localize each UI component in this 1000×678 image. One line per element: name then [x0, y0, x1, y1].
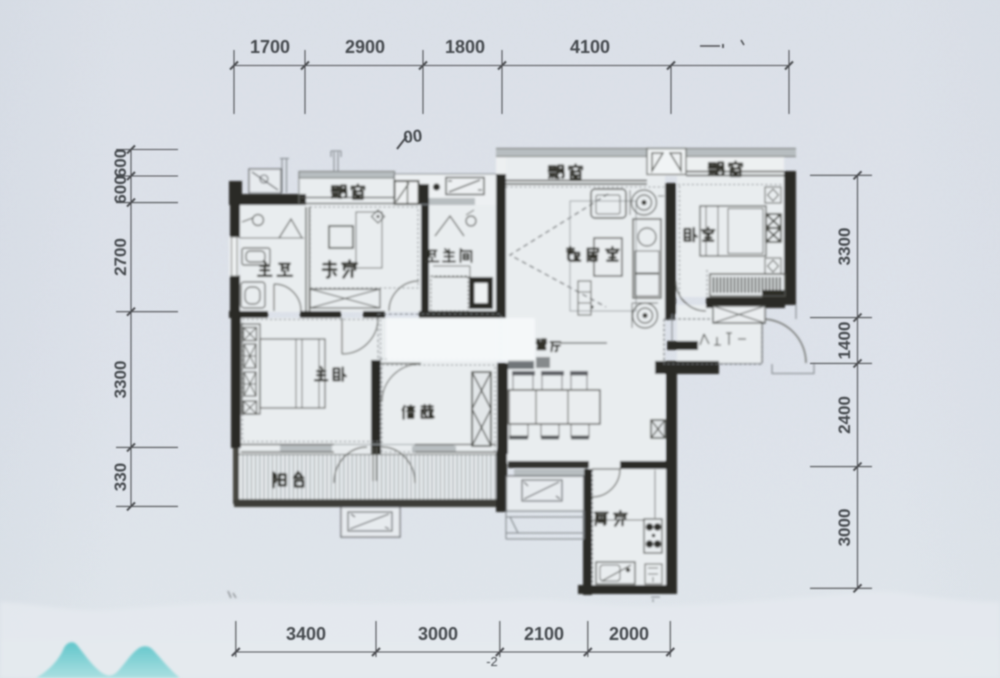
svg-text:2900: 2900: [345, 37, 385, 57]
svg-text:00: 00: [402, 126, 423, 147]
svg-text:2100: 2100: [524, 624, 564, 644]
svg-text:1400: 1400: [835, 322, 854, 360]
svg-text:4100: 4100: [570, 37, 610, 57]
svg-text:-2: -2: [486, 654, 498, 669]
svg-text:3000: 3000: [418, 624, 458, 644]
svg-text:3000: 3000: [835, 509, 854, 547]
svg-text:3300: 3300: [835, 228, 854, 266]
svg-text:2000: 2000: [609, 624, 649, 644]
svg-text:330: 330: [111, 463, 130, 491]
svg-text:2700: 2700: [111, 238, 130, 276]
svg-text:3300: 3300: [111, 361, 130, 399]
svg-text:600: 600: [111, 175, 130, 203]
svg-text:2400: 2400: [835, 396, 854, 434]
svg-text:1700: 1700: [250, 37, 290, 57]
svg-text:3400: 3400: [286, 624, 326, 644]
svg-text:1800: 1800: [445, 37, 485, 57]
svg-text:600: 600: [111, 149, 130, 177]
